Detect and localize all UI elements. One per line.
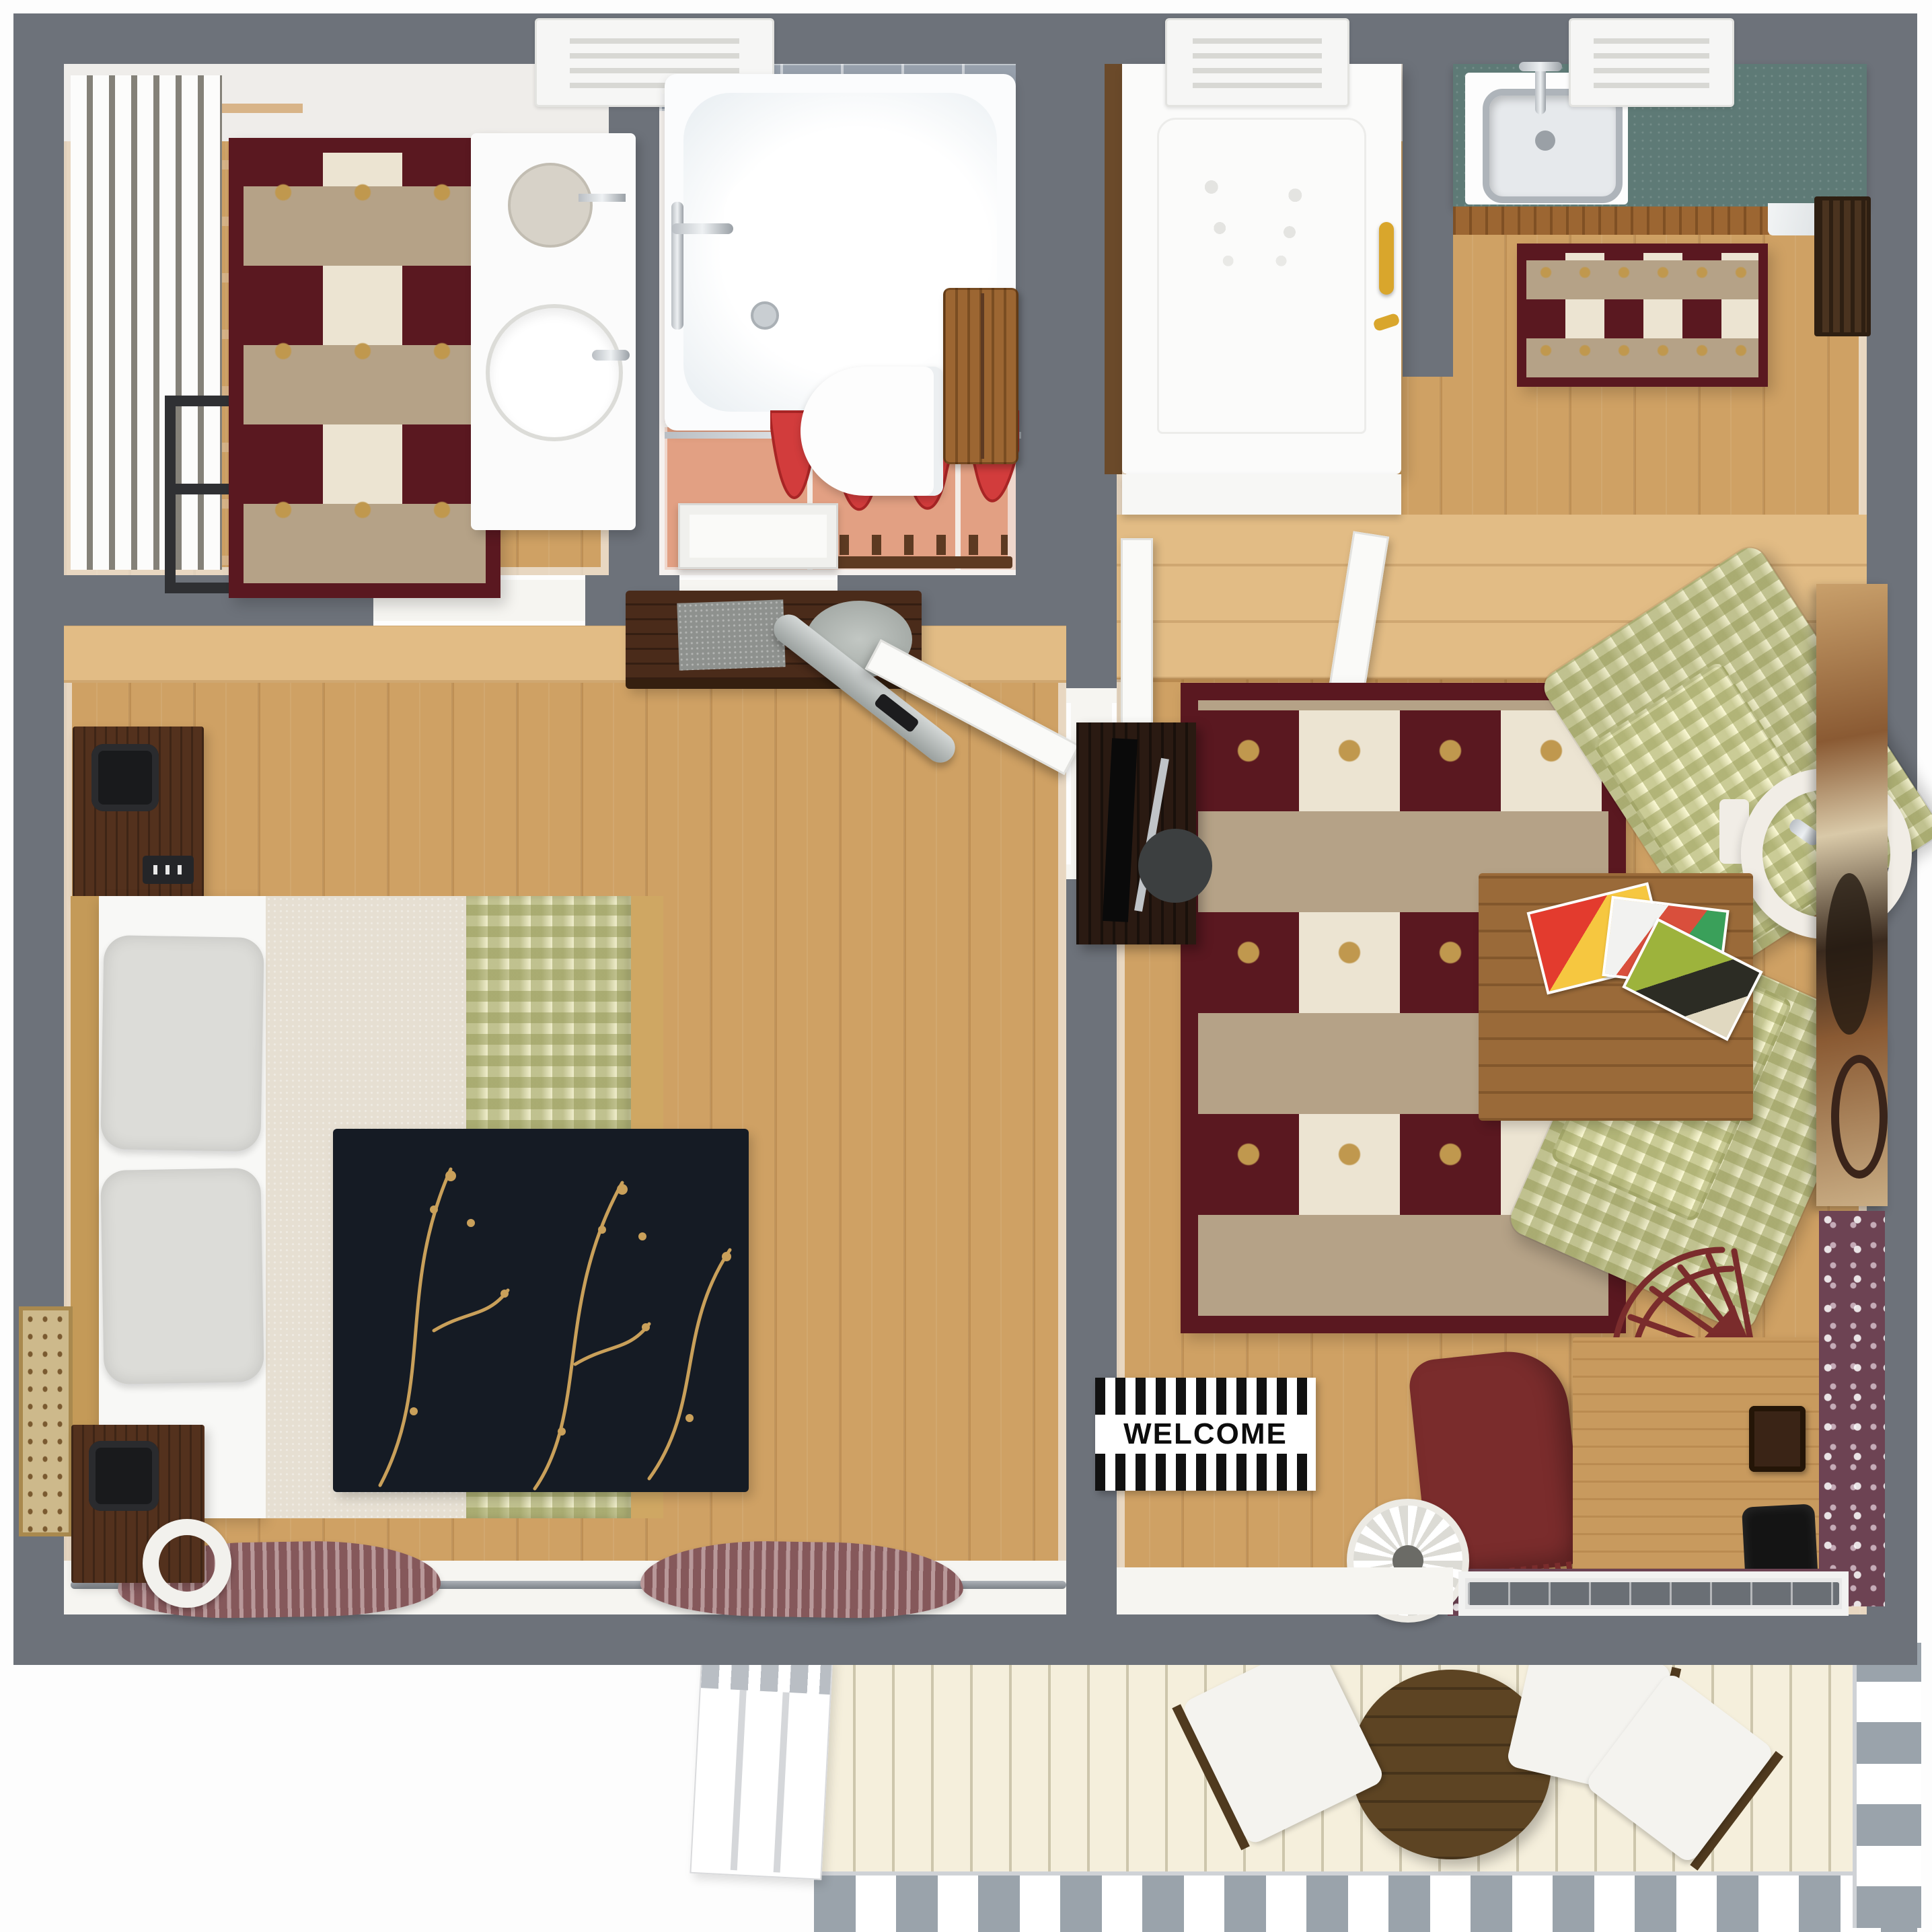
bathroom-door <box>678 503 838 569</box>
vanity-sink <box>486 304 623 441</box>
stairs-step-line-1 <box>731 1690 747 1870</box>
doorjamb-top <box>1066 688 1117 703</box>
shower-circle <box>724 172 811 259</box>
wardrobe-side-panel <box>1105 64 1122 474</box>
pillow-1 <box>100 935 264 1152</box>
desk-pad <box>677 599 785 670</box>
kitchen-cabinet-front <box>1453 207 1769 235</box>
balcony-sliding-door <box>1458 1571 1849 1616</box>
dressing-room-rug <box>229 138 500 598</box>
hook-pegs <box>840 535 1008 555</box>
wall-entry-kitchen <box>1403 64 1453 377</box>
balcony-railing-bottom <box>814 1871 1917 1932</box>
tub-faucet-spout <box>671 223 733 234</box>
black-floral-rug <box>333 1129 749 1492</box>
entry-ledge <box>1122 474 1401 515</box>
painting-blob-2 <box>1831 1055 1888 1179</box>
living-window-sill <box>1117 1567 1453 1614</box>
entry-ceiling-vent <box>1165 18 1349 107</box>
wall-divider-lower <box>1066 864 1117 1614</box>
tub-drain <box>751 301 779 330</box>
bathroom-wall-cabinet <box>943 288 1018 464</box>
balcony-stairs <box>690 1649 833 1880</box>
floor-plan: WELCOME <box>0 0 1932 1932</box>
painting-blob-1 <box>1826 873 1873 1035</box>
cabinet-door-gap <box>981 293 984 459</box>
tv-speaker <box>1138 829 1212 903</box>
pillow-2 <box>100 1168 264 1384</box>
rug-vines <box>333 1129 749 1492</box>
abstract-painting <box>1816 584 1888 1206</box>
welcome-mat-text: WELCOME <box>1095 1415 1316 1454</box>
wall-bathroom-right <box>1016 64 1066 575</box>
wall-bottom <box>13 1614 1917 1665</box>
kitchen-rug <box>1517 244 1768 387</box>
tv-cabinet <box>1076 722 1196 944</box>
door-track <box>1468 1582 1839 1605</box>
table-lamp-black-2 <box>89 1441 159 1511</box>
welcome-mat: WELCOME <box>1095 1378 1316 1491</box>
coat-hook-rack <box>834 535 1012 574</box>
kitchen-ceiling-vent <box>1569 18 1734 107</box>
paper-roll <box>143 1519 231 1608</box>
wall-grille <box>1814 196 1871 336</box>
sink-drain <box>1535 131 1555 151</box>
desk-box <box>1749 1406 1806 1472</box>
vent-grille <box>1193 37 1323 88</box>
entry-wardrobe <box>1122 64 1401 474</box>
toilet <box>801 367 943 496</box>
wall-art-bedroom <box>19 1306 73 1536</box>
tv-screen <box>1103 738 1138 922</box>
balcony-railing-right <box>1853 1643 1921 1928</box>
vanity-lamp-arm <box>579 194 626 202</box>
clock-radio <box>143 856 194 884</box>
wardrobe-gold-handle <box>1379 222 1394 295</box>
sink-faucet <box>592 350 630 361</box>
vent-grille <box>1594 37 1710 88</box>
runner-rug-right <box>1819 1211 1885 1606</box>
wardrobe-panel-outline <box>1157 118 1366 434</box>
table-lamp-black <box>91 744 159 811</box>
hallway-door-leaf-left <box>1121 538 1153 751</box>
kitchen-faucet <box>1535 65 1546 114</box>
tub-faucet-vertical <box>671 202 683 330</box>
hook-bar <box>834 556 1012 568</box>
vanity-lamp <box>508 163 593 248</box>
kitchen-faucet-bar <box>1519 62 1562 71</box>
stairs-step-line-2 <box>774 1693 790 1873</box>
